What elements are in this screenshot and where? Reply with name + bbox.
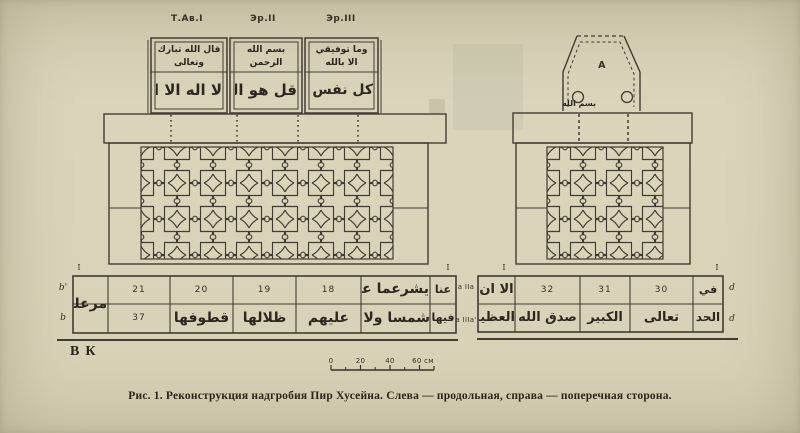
scale-label-60cm: 60 см <box>408 357 438 365</box>
right-plinth-bottom-calligraphy-3: الكبير <box>580 305 630 331</box>
plinth-bottom-calligraphy-3: عليهم <box>296 305 361 332</box>
right-plinth-cell-31: 31 <box>580 277 630 303</box>
plinth-cell-21: 21 <box>108 277 170 303</box>
plinth-cell-18: 18 <box>296 277 361 303</box>
plinth-bottom-calligraphy-1: قطوفها <box>170 305 233 332</box>
right-plinth-bottom-calligraphy-1: العظيم <box>479 305 515 331</box>
figure-caption-number: Рис. 1. <box>128 390 163 402</box>
panel-2-lower-calligraphy: قل هو الله احد <box>235 74 297 108</box>
right-plinth-bottom-calligraphy-2: صدق الله <box>515 305 580 331</box>
plinth-cell-20: 20 <box>170 277 233 303</box>
epigraphy-zone-label-2: Эр.II <box>238 14 288 24</box>
figure-caption: Рис. 1. Реконструкция надгробия Пир Хусе… <box>0 390 800 402</box>
draughtsman-initials: ВК <box>70 344 102 360</box>
scanned-page: Т.Ав.I Эр.II Эр.III قال الله تبارك وتعال… <box>0 0 800 433</box>
corner-tick-right: I <box>443 263 453 272</box>
panel-2-upper-calligraphy: بسم الله الرحمن الرحيم <box>235 44 297 70</box>
panel-1-lower-calligraphy: لا اله الا الله <box>156 74 222 108</box>
reconstruction-drawing <box>0 0 800 433</box>
row-label-d-bottom: d <box>726 314 738 324</box>
right-plinth-cell-30: 30 <box>630 277 693 303</box>
panel-3-lower-calligraphy: كل نفس ذائقة <box>310 74 373 108</box>
row-label-b: b <box>56 313 70 323</box>
scale-label-20: 20 <box>351 357 370 365</box>
section-label-IIa: a IIa <box>454 283 478 291</box>
scale-label-0: 0 <box>324 357 338 365</box>
right-plinth-top-calligraphy-last: في <box>694 277 722 304</box>
right-plinth-cell-32: 32 <box>515 277 580 303</box>
apex-scribble-calligraphy: بسم الله <box>561 98 597 111</box>
apex-label-A: A <box>595 60 609 71</box>
plinth-side-calligraphy: مرعلى <box>74 279 107 331</box>
right-plinth-bottom-calligraphy-4: تعالى <box>630 305 693 331</box>
plinth-cell-37: 37 <box>108 305 170 332</box>
figure-caption-text: Реконструкция надгробия Пир Хусейна. Сле… <box>166 390 672 402</box>
section-label-IIIa: a IIIa' <box>453 316 479 324</box>
epigraphy-zone-label-1: Т.Ав.I <box>158 14 216 24</box>
corner-tick-left: I <box>74 263 84 272</box>
scale-bar-linework <box>331 365 434 370</box>
ink-bleed-ghost <box>429 44 523 130</box>
plinth-top-calligraphy-wide: يشرعما عاد <box>362 277 429 304</box>
right-corner-tick-right: I <box>712 263 722 272</box>
right-plinth-bottom-calligraphy-5: الحد <box>693 305 723 331</box>
row-label-d-top: d <box>726 283 738 293</box>
panel-1-upper-calligraphy: قال الله تبارك وتعالى <box>156 44 222 70</box>
epigraphy-zone-label-3: Эр.III <box>314 14 368 24</box>
scale-label-40: 40 <box>380 357 400 365</box>
right-plinth-top-calligraphy-first: الا ان <box>479 277 514 304</box>
panel-3-upper-calligraphy: وما توفيقي الا بالله <box>310 44 373 70</box>
plinth-bottom-calligraphy-4: شمسا ولا ز <box>361 305 430 332</box>
row-label-b-prime: b' <box>56 283 70 293</box>
plinth-bottom-calligraphy-2: ظلالها <box>233 305 296 332</box>
plinth-top-calligraphy-narrow: عنا <box>431 277 455 304</box>
plinth-cell-19: 19 <box>233 277 296 303</box>
plinth-bottom-calligraphy-5: فيها <box>431 305 455 332</box>
right-corner-tick-left: I <box>499 263 509 272</box>
